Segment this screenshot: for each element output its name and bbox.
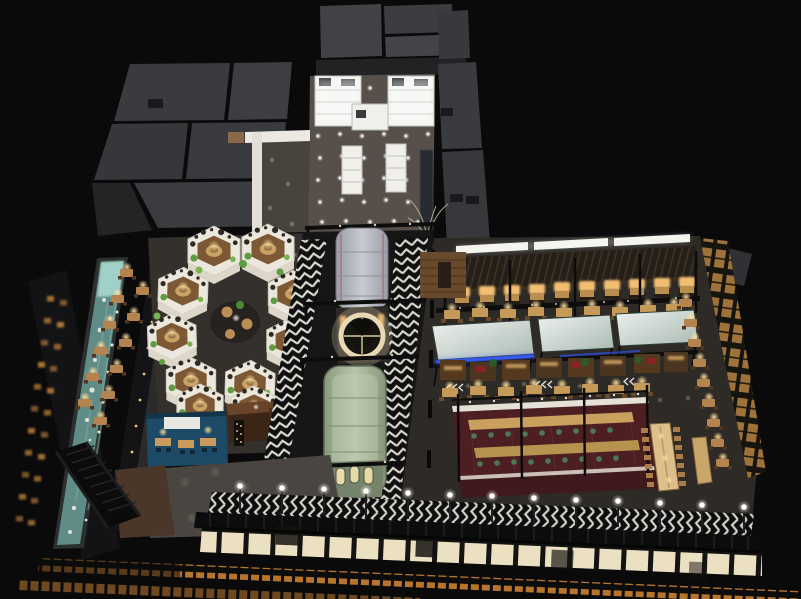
clock-ring-feature	[336, 306, 390, 364]
white-side-wall	[252, 132, 262, 233]
log-cabin-storefront	[420, 252, 466, 298]
gray-train-car	[336, 228, 388, 310]
foodhall-render	[0, 0, 801, 599]
blue-room	[146, 411, 228, 467]
wood-door	[228, 132, 244, 143]
pod-court	[210, 301, 260, 343]
render-viewport	[0, 0, 801, 599]
food-hall	[398, 234, 766, 524]
retail-kiosk	[388, 76, 434, 126]
